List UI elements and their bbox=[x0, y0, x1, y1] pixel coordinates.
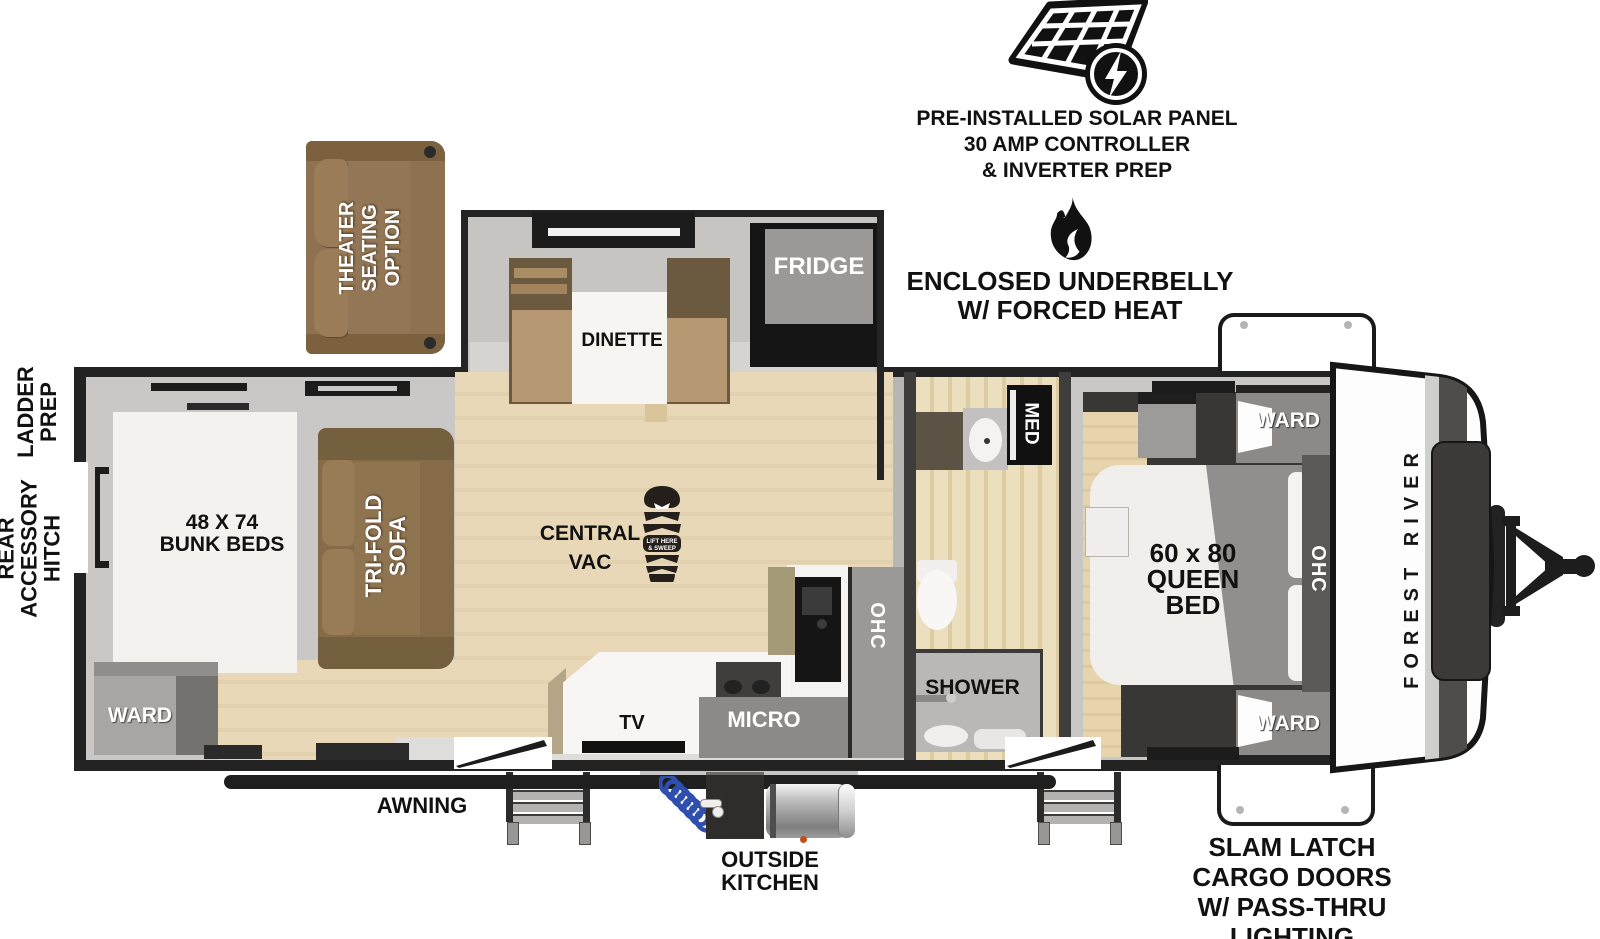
svg-text:& SWEEP: & SWEEP bbox=[648, 546, 676, 552]
svg-text:LIFT HERE: LIFT HERE bbox=[647, 539, 678, 545]
svg-text:FOREST RIVER: FOREST RIVER bbox=[1401, 445, 1423, 689]
